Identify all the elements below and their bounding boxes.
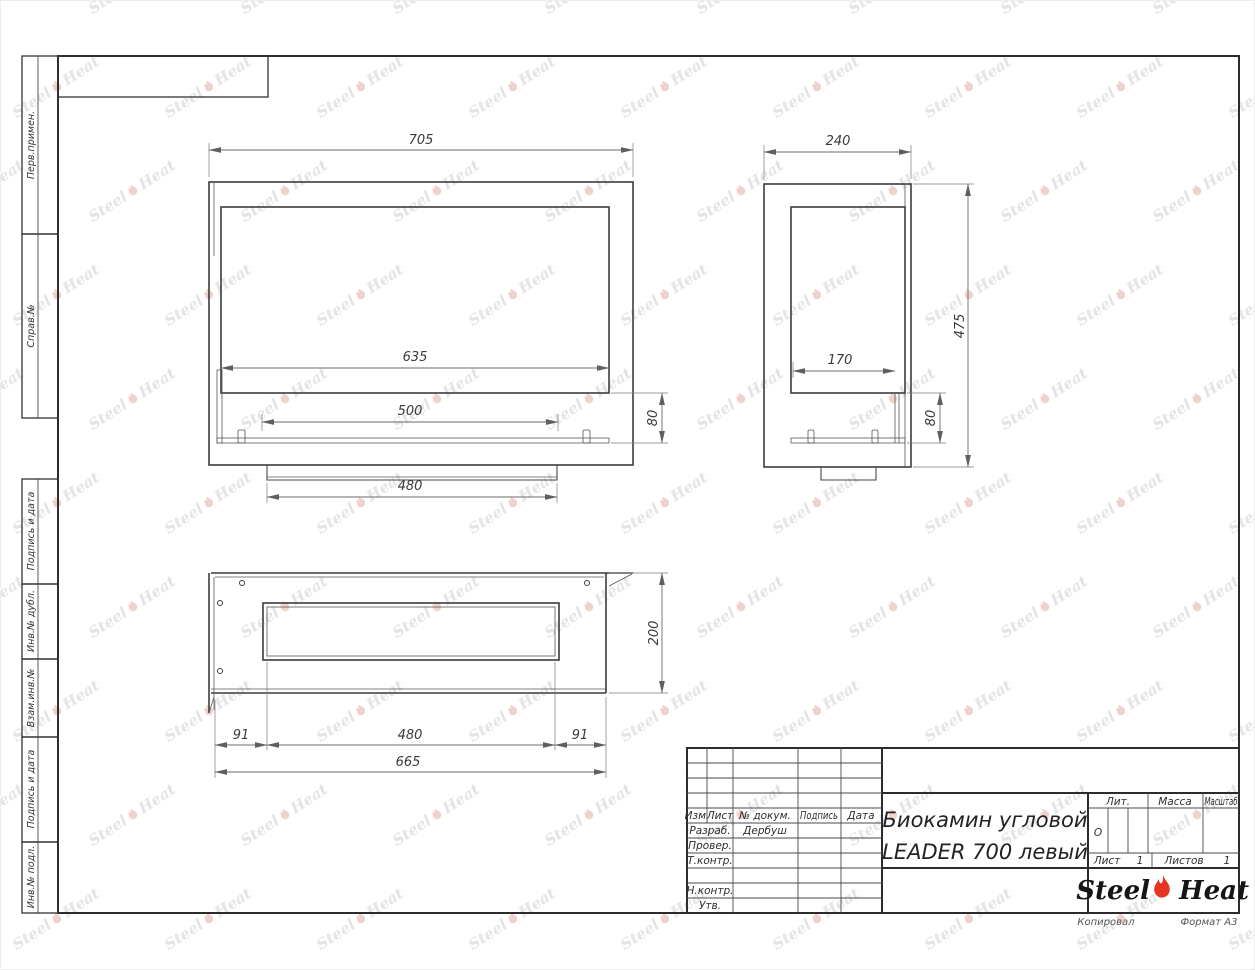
th-list: Лист xyxy=(706,810,734,822)
dim-front-opening: 635 xyxy=(403,350,428,365)
front-burner-clip-left xyxy=(238,430,245,443)
margin-label-inv-podl: Инв.№ подл. xyxy=(26,846,37,909)
dim-side-height: 475 xyxy=(953,314,968,339)
logo-heat-text: Heat xyxy=(1178,876,1249,906)
front-outer-body xyxy=(209,182,633,465)
scale-label: Масштаб xyxy=(1205,796,1238,808)
doc-title-line2: LEADER 700 левый xyxy=(882,840,1088,864)
top-view: 200 91 480 91 665 xyxy=(209,573,668,778)
row-tkontr-label: Т.контр. xyxy=(687,855,733,867)
logo-flame-icon xyxy=(1154,875,1170,898)
margin-label-sprav-no: Справ.№ xyxy=(26,304,37,347)
side-base xyxy=(821,467,876,480)
dim-top-right-offset: 91 xyxy=(572,728,589,743)
dim-top-left-offset: 91 xyxy=(233,728,250,743)
dim-top-opening: 480 xyxy=(398,728,423,743)
dim-front-base: 480 xyxy=(398,479,423,494)
engineering-drawing: Перв.примен. Справ.№ Подпись и дата Инв.… xyxy=(0,0,1255,970)
lit-label: Лит. xyxy=(1105,796,1130,808)
margin-label-podpis-data-1: Подпись и дата xyxy=(26,491,37,570)
front-base xyxy=(267,465,557,480)
drawing-sheet: SteelHeatSteelHeatSteelHeatSteelHeatStee… xyxy=(0,0,1255,970)
margin-label-perv-primen: Перв.примен. xyxy=(26,111,37,179)
sheet-label: Лист xyxy=(1093,855,1121,867)
front-opening xyxy=(221,207,609,393)
side-burner-clip-left xyxy=(808,430,814,443)
steelheat-logo: Steel Heat xyxy=(1076,875,1249,906)
footer-labels: Копировал Формат А3 xyxy=(1077,917,1237,928)
row-prover-label: Провер. xyxy=(688,840,732,852)
drawing-frame xyxy=(58,56,1239,913)
dim-front-tray-height: 80 xyxy=(646,410,661,427)
dim-front-width: 705 xyxy=(409,133,434,148)
th-data: Дата xyxy=(846,810,874,822)
dim-side-tray-height: 80 xyxy=(924,410,939,427)
top-opening-outer xyxy=(263,603,559,660)
dim-side-depth: 240 xyxy=(826,134,851,149)
margin-label-vzam-inv: Взам.инв.№ xyxy=(26,669,37,728)
side-outer-body xyxy=(764,184,911,467)
row-nkontr-label: Н.контр. xyxy=(687,885,734,897)
dim-front-burner: 500 xyxy=(398,404,423,419)
margin-label-inv-dubl: Инв.№ дубл. xyxy=(26,590,37,652)
top-left-stamp-box xyxy=(58,56,268,97)
front-burner-tray xyxy=(217,438,609,443)
logo-steel-text: Steel xyxy=(1076,876,1150,906)
dim-side-inner-depth: 170 xyxy=(828,353,853,368)
margin-label-podpis-data-2: Подпись и дата xyxy=(26,749,37,828)
doc-title-line1: Биокамин угловой xyxy=(883,808,1088,832)
top-opening-inner xyxy=(267,607,555,656)
mount-hole xyxy=(218,601,223,606)
front-burner-clip-right xyxy=(583,430,590,443)
th-dokum: № докум. xyxy=(738,810,791,822)
th-podpis: Подпись xyxy=(800,810,838,822)
th-izm: Изм. xyxy=(685,810,710,822)
row-razrab-value: Дербуш xyxy=(742,825,787,837)
mount-hole xyxy=(218,669,223,674)
sheets-total: 1 xyxy=(1224,855,1231,867)
copied-label: Копировал xyxy=(1077,917,1135,928)
format-label: Формат А3 xyxy=(1181,917,1238,928)
mount-hole xyxy=(585,581,590,586)
margin-column: Перв.примен. Справ.№ Подпись и дата Инв.… xyxy=(22,56,58,913)
mount-hole xyxy=(240,581,245,586)
row-utv-label: Утв. xyxy=(699,900,721,912)
mass-label: Масса xyxy=(1158,796,1191,808)
lit-value: О xyxy=(1094,827,1102,839)
dim-top-total: 665 xyxy=(396,755,421,770)
front-view: 705 635 500 80 480 xyxy=(209,133,668,503)
side-burner-clip-right xyxy=(872,430,878,443)
sheet-number: 1 xyxy=(1137,855,1144,867)
sheets-label: Листов xyxy=(1163,855,1203,867)
side-view: 240 170 80 475 xyxy=(764,134,974,480)
row-razrab-label: Разраб. xyxy=(689,825,730,837)
dim-top-height: 200 xyxy=(647,621,662,646)
